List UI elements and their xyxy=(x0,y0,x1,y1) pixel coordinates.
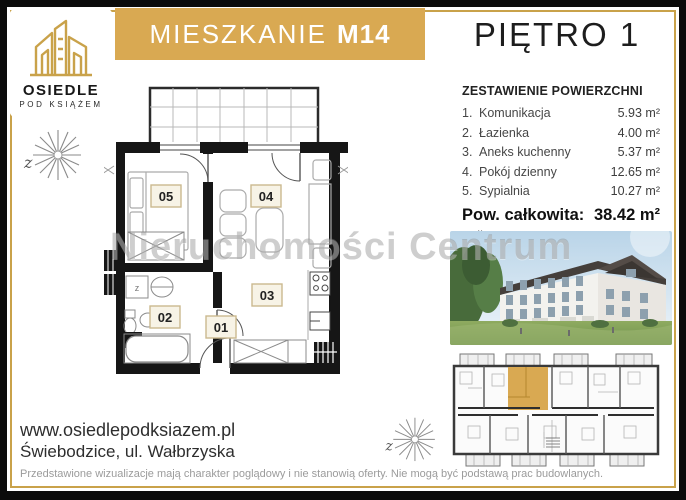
radiator-left xyxy=(104,250,117,295)
room-label-04: 04 xyxy=(259,189,274,204)
floor-overview-plan xyxy=(448,352,664,468)
compass-mark: z xyxy=(384,439,393,455)
floor-label: PIĘTRO 1 xyxy=(443,16,671,54)
corner-marker-icon xyxy=(104,166,348,174)
door-arcs xyxy=(180,153,300,368)
summary-heading: ZESTAWIENIE POWIERZCHNI xyxy=(462,84,660,98)
area-summary: ZESTAWIENIE POWIERZCHNI 1. Komunikacja 5… xyxy=(462,84,660,246)
apartment-title-bar: MIESZKANIE M14 xyxy=(115,8,425,60)
wardrobe-hall xyxy=(234,340,306,363)
summary-row: 5. Sypialnia 10.27 m² xyxy=(462,182,660,202)
website-link[interactable]: www.osiedlepodksiazem.pl xyxy=(20,420,235,441)
disclaimer-text: Przedstawione wizualizacje mają charakte… xyxy=(20,468,603,480)
summary-row: 3. Aneks kuchenny 5.37 m² xyxy=(462,143,660,163)
compass-star-icon: z xyxy=(18,128,82,188)
apartment-floorplan: 05 04 03 02 01 z xyxy=(104,84,348,380)
brand-subname: POD KSIĄŻEM xyxy=(9,100,113,109)
summary-total-row: Pow. całkowita: 38.42 m² xyxy=(462,203,660,227)
room-label-03: 03 xyxy=(260,288,274,303)
address-text: Świebodzice, ul. Wałbrzyska xyxy=(20,442,235,462)
overview-highlight-unit xyxy=(508,367,548,410)
dining-table xyxy=(309,160,331,268)
brand-logo: OSIEDLE POD KSIĄŻEM xyxy=(9,7,113,119)
brand-name: OSIEDLE xyxy=(9,82,113,99)
summary-row: 4. Pokój dzienny 12.65 m² xyxy=(462,163,660,183)
coffee-table xyxy=(256,208,283,252)
building-render xyxy=(450,231,672,345)
sofa xyxy=(220,190,246,258)
compass-star-icon: z xyxy=(378,416,438,468)
summary-row: 2. Łazienka 4.00 m² xyxy=(462,124,660,144)
room-label-01: 01 xyxy=(214,320,228,335)
buildings-outline-icon xyxy=(28,17,94,79)
apartment-unit-code: M14 xyxy=(337,19,391,50)
room-label-05: 05 xyxy=(159,189,173,204)
flyer-canvas: OSIEDLE POD KSIĄŻEM MIESZKANIE M14 PIĘTR… xyxy=(0,0,686,500)
compass-mark: z xyxy=(23,153,33,172)
kitchen xyxy=(308,270,330,340)
radiator-kitchen xyxy=(314,342,337,363)
apartment-title: MIESZKANIE xyxy=(149,19,326,50)
washer-label: z xyxy=(135,283,140,293)
wardrobe-room5 xyxy=(128,232,184,260)
summary-row: 1. Komunikacja 5.93 m² xyxy=(462,104,660,124)
balcony xyxy=(150,88,318,146)
room-label-02: 02 xyxy=(158,310,172,325)
